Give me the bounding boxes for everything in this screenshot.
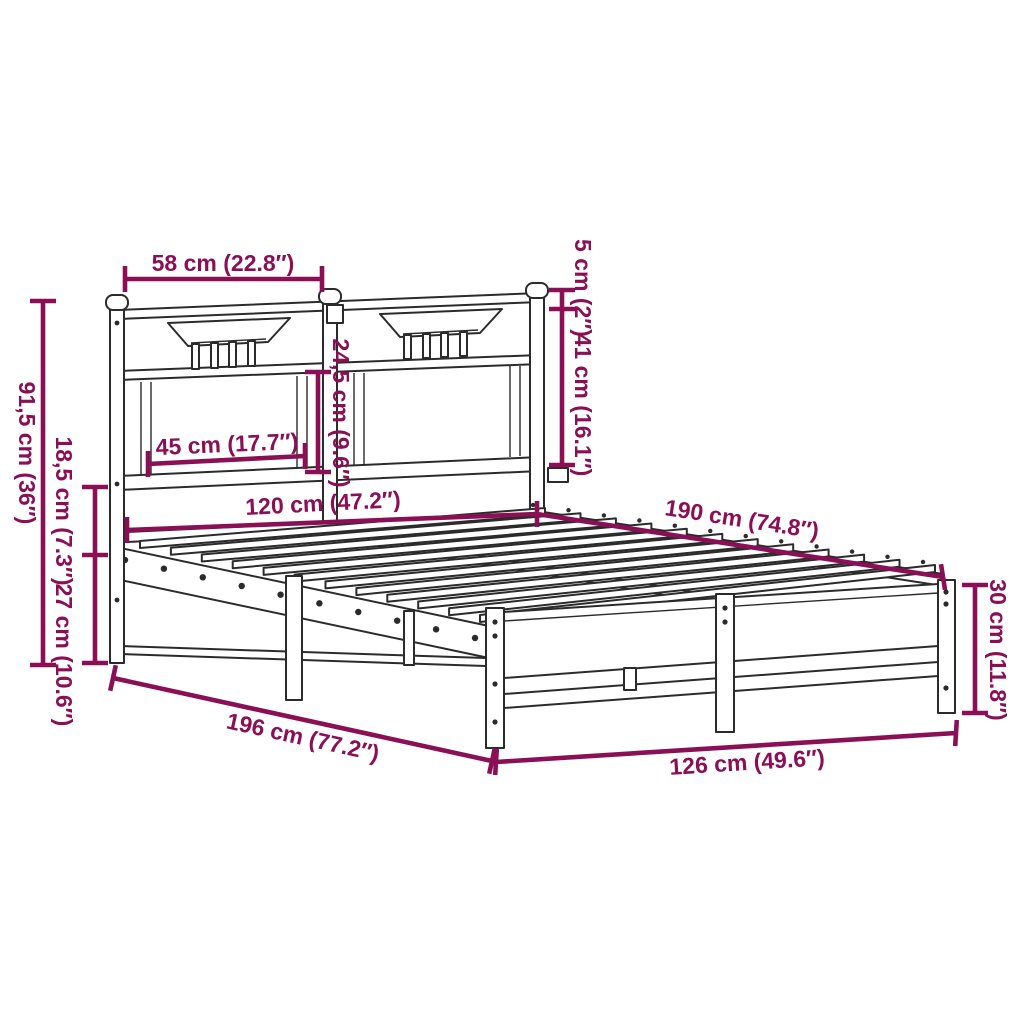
headboard-decor-left — [168, 318, 290, 369]
dimension-label: 91,5 cm (36″) — [14, 382, 40, 525]
dimension-label: 24,5 cm (9.6″) — [328, 338, 354, 487]
footboard-connector — [624, 668, 636, 690]
headboard-decor-right — [380, 309, 502, 359]
dim-rail-height-and-clearance: 18,5 cm (7.3″) 27 cm (10.6″) — [51, 436, 108, 726]
dim-headboard-section-width: 58 cm (22.8″) — [125, 250, 322, 292]
center-leg — [286, 576, 302, 700]
dimension-label: 58 cm (22.8″) — [152, 250, 295, 276]
headboard-left-post — [106, 295, 128, 663]
dimension-label: 5 cm (2″) — [570, 239, 596, 337]
dimension-label: 196 cm (77.2″) — [224, 708, 381, 767]
footboard-middle-post — [716, 594, 734, 732]
footboard-left-post — [486, 608, 504, 748]
footboard-right-post — [938, 580, 955, 713]
dimension-label: 30 cm (11.8″) — [985, 579, 1011, 720]
dimension-label: 18,5 cm (7.3″) — [51, 436, 77, 585]
dimension-line — [82, 487, 108, 663]
dim-headboard-total-height: 91,5 cm (36″) — [14, 301, 56, 665]
support-leg — [404, 611, 414, 665]
dimension-label: 41 cm (16.1″) — [570, 334, 596, 477]
dim-post-cap-and-upper-height: 5 cm (2″) 41 cm (16.1″) — [549, 239, 596, 476]
bed-frame-dimension-diagram: 58 cm (22.8″) 5 cm (2″) 41 cm (16.1″) 24… — [0, 0, 1024, 1024]
dimension-label: 27 cm (10.6″) — [51, 584, 77, 727]
dimension-label: 120 cm (47.2″) — [245, 486, 402, 520]
dimension-line — [962, 585, 988, 713]
dim-footboard-height: 30 cm (11.8″) — [962, 579, 1011, 720]
footboard — [486, 580, 955, 748]
dim-headboard-panel-height: 24,5 cm (9.6″) — [305, 338, 354, 487]
